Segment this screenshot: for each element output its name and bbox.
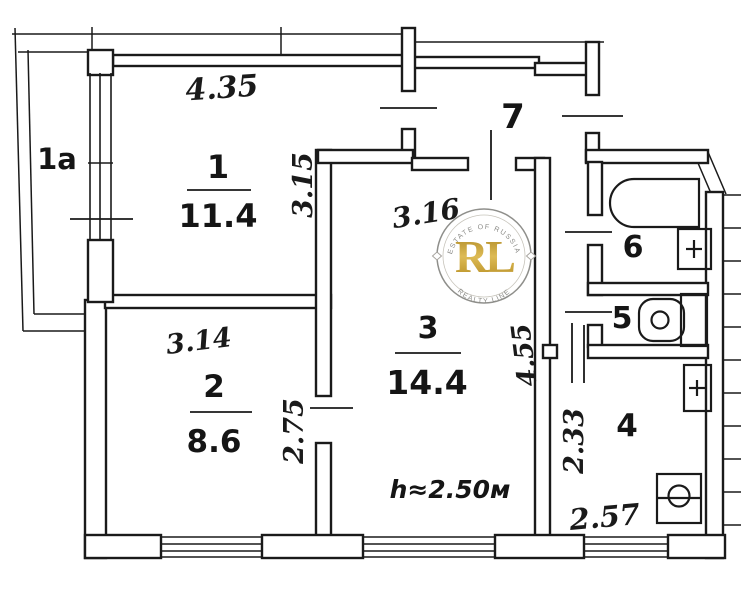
kitchen-depth-label: 2.33: [559, 408, 590, 475]
hallway-number-label: 7: [501, 97, 525, 137]
wall-kitchen-top-a: [543, 345, 557, 358]
wall-room1-hall-upper: [402, 28, 415, 91]
room1-depth-label: 3.15: [288, 152, 319, 218]
window-room3: [363, 537, 495, 557]
wall-hall-top-a: [413, 57, 539, 68]
room1-number-label: 1: [207, 148, 229, 186]
wall-bottom-b: [262, 535, 363, 558]
wall-hall-right-upper: [586, 42, 599, 95]
wall-bottom-d: [668, 535, 725, 558]
wall-left-exterior: [85, 300, 106, 558]
wall-room3-left-lower: [316, 443, 331, 536]
watermark-initials: RL: [455, 231, 514, 282]
wall-hall-top-b: [535, 63, 592, 75]
room1-area-label: 11.4: [179, 197, 258, 235]
room2-number-label: 2: [203, 369, 225, 405]
toilet-icon: [639, 294, 707, 346]
wall-corridor-right-c: [588, 325, 602, 347]
floor-plan-page: 1a 4.35 1 11.4 3.15 7 3.16 3 14.4 4.55 h…: [0, 0, 756, 600]
room3-area-label: 14.4: [386, 363, 467, 402]
ceiling-height-label: h≈2.50м: [390, 475, 511, 504]
kitchen-number-label: 4: [616, 408, 638, 444]
window-kitchen: [583, 537, 668, 557]
bathtub-icon: [610, 179, 699, 227]
wall-bath-top: [586, 150, 708, 163]
floor-plan-drawing: 1a 4.35 1 11.4 3.15 7 3.16 3 14.4 4.55 h…: [0, 0, 756, 600]
window-balcony-unit: [70, 50, 133, 302]
balcony-number-label: 1a: [37, 142, 77, 176]
bathroom-number-label: 6: [623, 230, 644, 265]
wall-corridor-right-a: [588, 162, 602, 215]
room3-number-label: 3: [418, 311, 439, 346]
right-wall-ticks: [723, 195, 741, 525]
wall-bottom-c: [495, 535, 584, 558]
wall-bottom-a: [85, 535, 161, 558]
wall-room1-top: [113, 55, 405, 66]
wall-room3-top-a: [318, 150, 413, 163]
room1-width-label: 4.35: [184, 68, 259, 108]
kitchen-sink-icon: [657, 474, 701, 523]
wall-room1-room2: [105, 295, 331, 308]
room2-depth-label: 2.75: [279, 398, 310, 465]
kitchen-width-label: 2.57: [567, 497, 641, 537]
room2-area-label: 8.6: [187, 424, 242, 460]
toilet-number-label: 5: [612, 301, 633, 336]
window-room2: [161, 537, 262, 557]
wall-right-exterior: [706, 192, 723, 558]
wall-room3-top-b: [412, 158, 468, 170]
room2-width-label: 3.14: [164, 322, 233, 361]
